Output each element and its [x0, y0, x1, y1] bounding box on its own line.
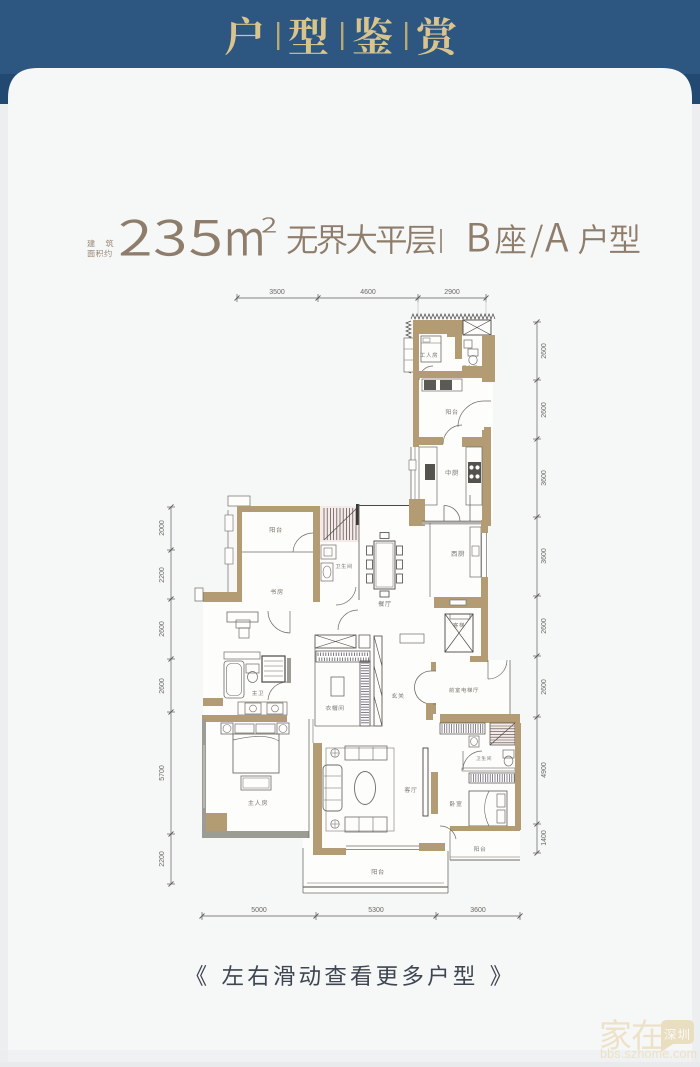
svg-text:1400: 1400	[541, 830, 548, 846]
svg-text:2200: 2200	[159, 567, 166, 583]
svg-text:2000: 2000	[159, 520, 166, 536]
svg-text:2600: 2600	[541, 343, 548, 359]
svg-text:2600: 2600	[159, 621, 166, 637]
svg-text:5000: 5000	[251, 907, 267, 914]
svg-text:3600: 3600	[541, 548, 548, 564]
svg-text:bbs.szhome.com: bbs.szhome.com	[600, 1047, 697, 1061]
svg-text:4900: 4900	[541, 762, 548, 778]
svg-text:2600: 2600	[541, 402, 548, 418]
svg-text:2200: 2200	[159, 851, 166, 867]
svg-text:3600: 3600	[470, 907, 486, 914]
svg-text:5700: 5700	[159, 765, 166, 781]
svg-text:2600: 2600	[159, 678, 166, 694]
svg-text:3500: 3500	[269, 289, 285, 296]
svg-text:3600: 3600	[541, 470, 548, 486]
svg-text:5300: 5300	[368, 907, 384, 914]
svg-text:2900: 2900	[444, 289, 460, 296]
svg-text:2600: 2600	[541, 679, 548, 695]
svg-text:4600: 4600	[360, 289, 376, 296]
svg-text:2600: 2600	[541, 618, 548, 634]
